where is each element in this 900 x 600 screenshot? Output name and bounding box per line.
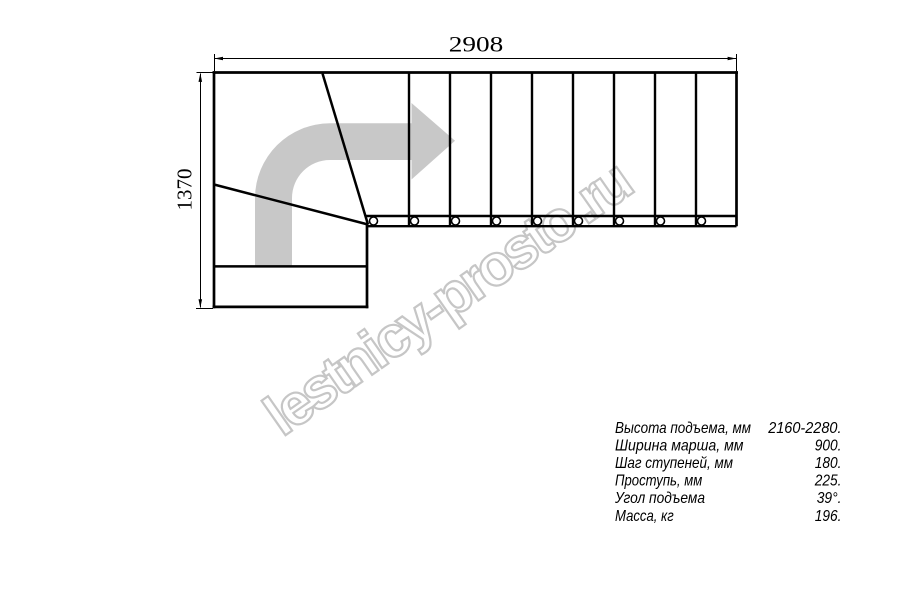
- svg-text:Угол подъема: Угол подъема: [614, 490, 705, 507]
- svg-text:Высота подъема, мм: Высота подъема, мм: [615, 420, 751, 437]
- svg-text:39°.: 39°.: [817, 490, 842, 507]
- svg-text:Шаг ступеней, мм: Шаг ступеней, мм: [615, 455, 733, 472]
- svg-text:180.: 180.: [815, 455, 842, 472]
- svg-text:900.: 900.: [815, 437, 842, 454]
- svg-text:1370: 1370: [173, 169, 197, 211]
- svg-text:Проступь, мм: Проступь, мм: [615, 473, 702, 490]
- svg-text:196.: 196.: [815, 508, 842, 525]
- svg-text:Масса, кг: Масса, кг: [615, 508, 674, 525]
- svg-text:2908: 2908: [449, 32, 504, 57]
- svg-text:225.: 225.: [814, 473, 842, 490]
- svg-text:2160-2280.: 2160-2280.: [767, 420, 841, 437]
- svg-text:Ширина марша, мм: Ширина марша, мм: [615, 437, 744, 454]
